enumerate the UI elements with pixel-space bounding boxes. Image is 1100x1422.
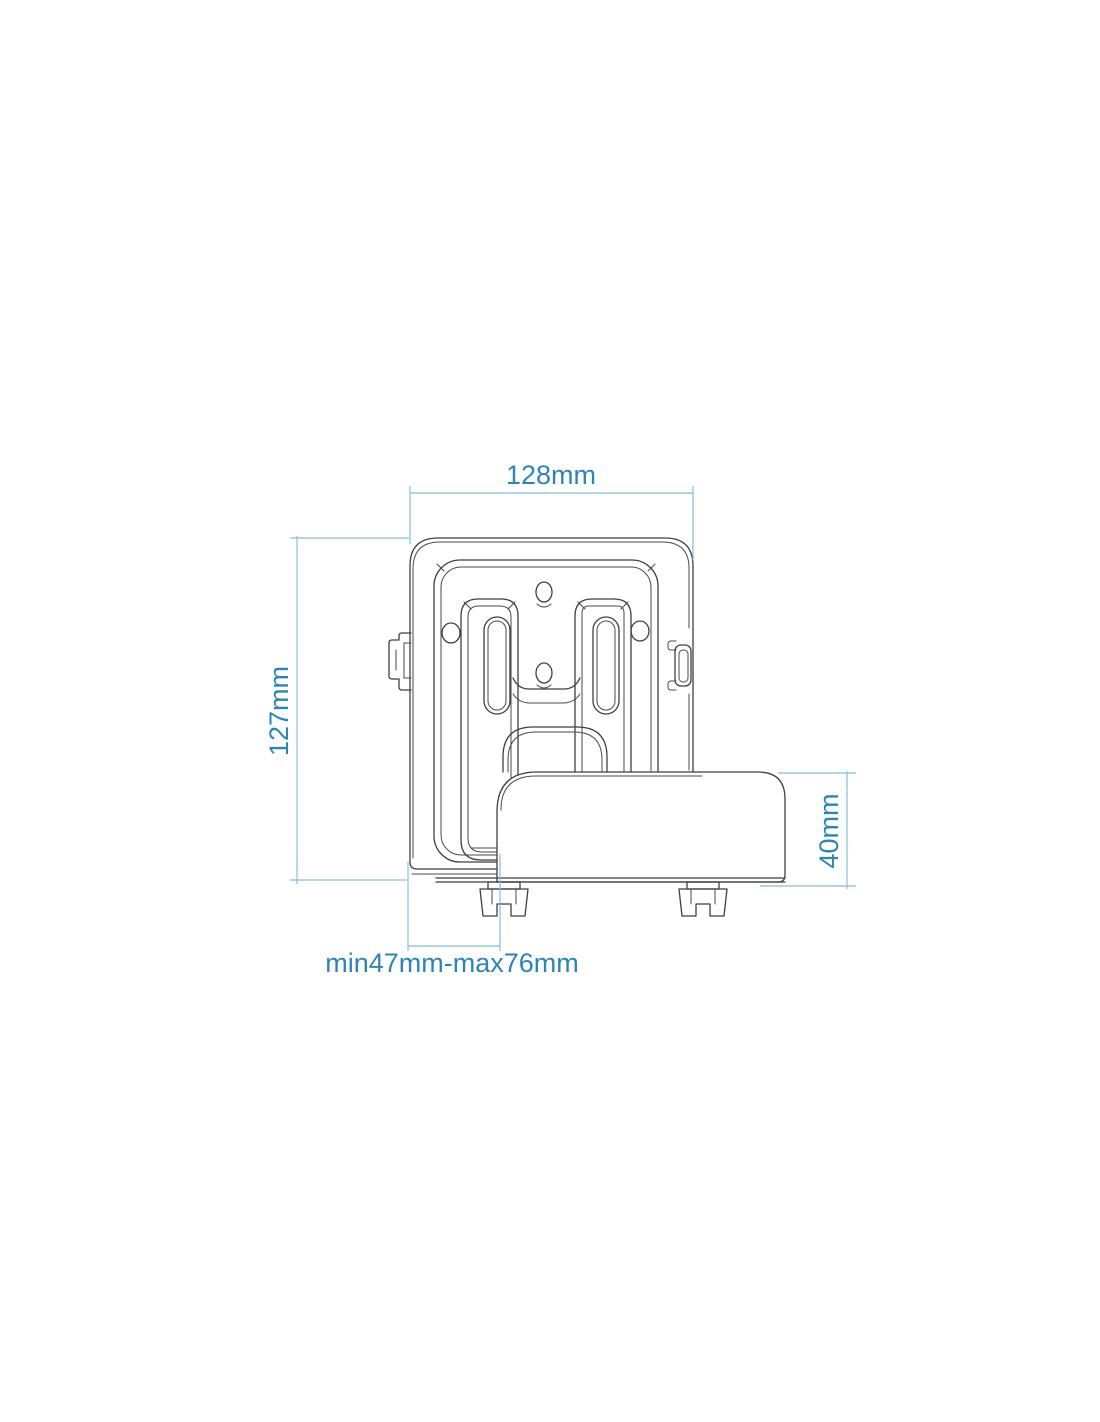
top-screw-hole (536, 582, 552, 602)
center-screw-hole (536, 663, 552, 683)
right-foot-ridges (691, 889, 715, 904)
device-box-outline (497, 772, 785, 882)
left-slot-inner (488, 621, 506, 710)
mounting-slots (484, 617, 619, 714)
crossbar-lower (513, 694, 580, 703)
dimension-label: 128mm (506, 460, 596, 490)
screw-holes (442, 582, 649, 688)
left-foot-bar (488, 882, 520, 889)
right-arm-outer (575, 599, 631, 772)
side-clip-left (389, 633, 411, 690)
center-screw-hole-shadow (537, 685, 551, 688)
left-foot-body (480, 889, 528, 916)
side-clip-right (668, 641, 691, 690)
center-cutout-inner (508, 732, 602, 772)
support-feet (480, 882, 727, 916)
technical-drawing: 128mm 127mm 40mm min47mm-max76mm (0, 0, 1100, 1422)
dimension-bracket-height: 127mm (264, 536, 409, 884)
right-foot-body (679, 889, 727, 916)
left-foot (480, 882, 528, 916)
right-clip-inner (679, 650, 688, 682)
right-side-hole (631, 621, 649, 641)
left-foot-ridges (492, 889, 516, 904)
top-screw-hole-shadow (537, 604, 551, 607)
left-clip-outline (389, 633, 411, 690)
dimension-label: 40mm (814, 793, 844, 868)
right-foot-bar (687, 882, 719, 889)
dimension-bracket-width: 128mm (410, 460, 693, 560)
left-clip-detail (396, 643, 411, 678)
right-slot-inner (597, 621, 615, 710)
right-clip-outline (675, 645, 691, 686)
dimension-label: 127mm (264, 666, 294, 756)
dimension-label: min47mm-max76mm (325, 948, 579, 978)
right-arm-inner (582, 606, 624, 772)
right-foot (679, 882, 727, 916)
diagram-canvas: 128mm 127mm 40mm min47mm-max76mm (0, 0, 1100, 1422)
device-box (497, 772, 785, 882)
left-side-hole (442, 623, 460, 643)
